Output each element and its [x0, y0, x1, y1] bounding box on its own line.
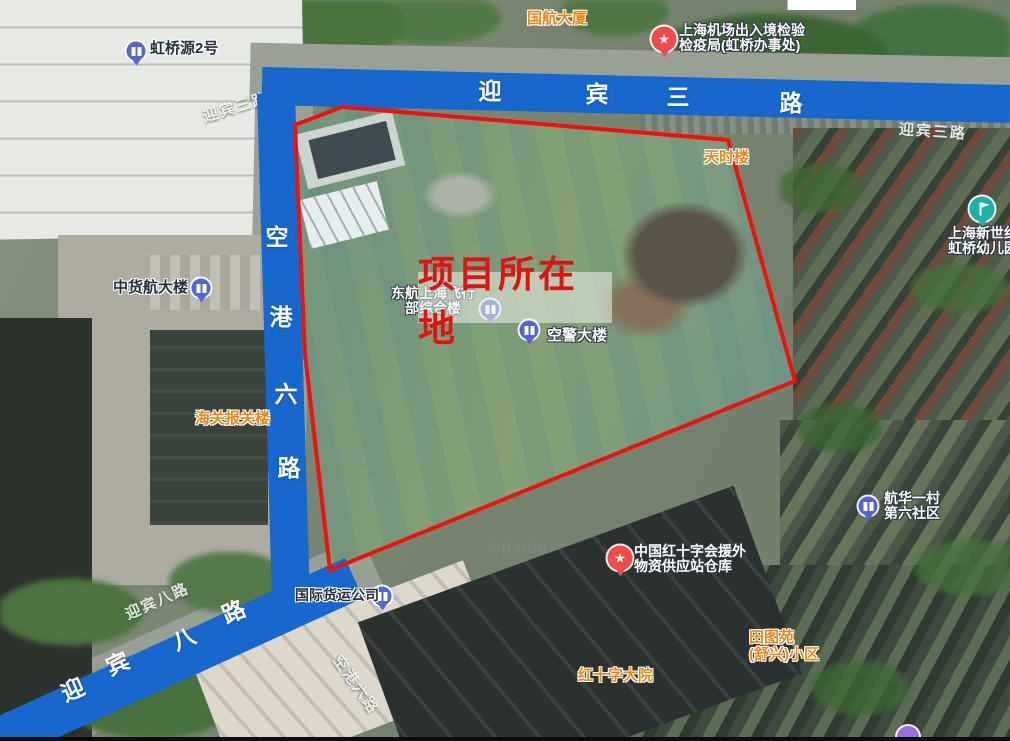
star-glyph: ★ [608, 546, 633, 571]
cut-label-box [787, 0, 856, 10]
hongqiao-kindergarten-label[interactable]: 上海新世纪虹桥幼儿园 [948, 226, 1010, 257]
airport-inspection-bureau-label[interactable]: 上海机场出入境检验检疫局(虹桥办事处) [679, 23, 805, 54]
building-glyph [131, 47, 141, 56]
terrain-patch [150, 330, 268, 525]
poi-label-line: 物资供应站仓库 [634, 559, 746, 574]
air-police-building-label[interactable]: 空警大楼 [547, 328, 607, 345]
star-glyph: ★ [652, 27, 677, 52]
guohang-building-label[interactable]: 国航大厦 [527, 11, 587, 28]
hongqiao-yuan-2-marker-icon[interactable] [127, 42, 146, 61]
poi-label-line: 第六社区 [884, 506, 940, 521]
hanghua-village-6th-community-marker-icon[interactable] [859, 497, 878, 516]
satellite-terrain [0, 0, 1010, 741]
building-glyph [863, 502, 873, 511]
red-cross-compound-label[interactable]: 红十字大院 [578, 668, 653, 685]
building-glyph [524, 326, 534, 335]
poi-label-line: 空警大楼 [547, 328, 607, 345]
project-location-highlight: 项目所在地 [418, 272, 612, 323]
red-cross-warehouse-pin-icon[interactable]: ★ [608, 546, 633, 571]
intl-cargo-company-label[interactable]: 国际货运公司 [295, 588, 379, 603]
poi-label-line: 天时楼 [704, 150, 749, 167]
poi-label-line: 检疫局(虹桥办事处) [679, 38, 805, 53]
tiantuyuan-shuxing-label[interactable]: 田图苑(舒兴)小区 [749, 630, 819, 663]
poi-label-line: 虹桥源2号 [150, 41, 218, 58]
poi-label-line: 国际货运公司 [295, 588, 379, 603]
flag-glyph [982, 203, 990, 210]
hanghua-village-6th-community-label[interactable]: 航华一村第六社区 [884, 491, 940, 522]
flag-glyph [980, 203, 982, 216]
poi-label-line: 海关报关楼 [195, 411, 270, 428]
satellite-map[interactable]: 迎宾三路迎宾三路迎宾八路空港六路 迎宾三路空港六路迎宾八路 虹桥源2号国航大厦★… [0, 0, 1010, 741]
china-cargo-airlines-building-marker-icon[interactable] [192, 279, 211, 298]
hongqiao-yuan-2-label[interactable]: 虹桥源2号 [150, 41, 218, 58]
airport-inspection-bureau-pin-icon[interactable]: ★ [652, 27, 677, 52]
poi-label-line: ©Baidu [489, 541, 548, 558]
poi-label-line: 红十字大院 [578, 668, 653, 685]
poi-label-line: 田图苑 [749, 630, 819, 647]
china-cargo-airlines-building-label[interactable]: 中货航大楼 [113, 280, 188, 297]
hongqiao-kindergarten-pin-icon[interactable] [970, 197, 995, 222]
poi-label-line: 国航大厦 [527, 11, 587, 28]
poi-label-line: 虹桥幼儿园 [948, 241, 1010, 256]
building-glyph [196, 284, 206, 293]
tianshi-building-label[interactable]: 天时楼 [704, 150, 749, 167]
bottom-edge-bar [0, 737, 1010, 741]
poi-label-line: (舒兴)小区 [749, 647, 819, 664]
red-cross-warehouse-label[interactable]: 中国红十字会援外物资供应站仓库 [634, 544, 746, 575]
air-police-building-marker-icon[interactable] [520, 321, 539, 340]
baidu-watermark-label: ©Baidu [489, 541, 548, 558]
poi-label-line: 中货航大楼 [113, 280, 188, 297]
customs-declaration-building-label[interactable]: 海关报关楼 [195, 411, 270, 428]
